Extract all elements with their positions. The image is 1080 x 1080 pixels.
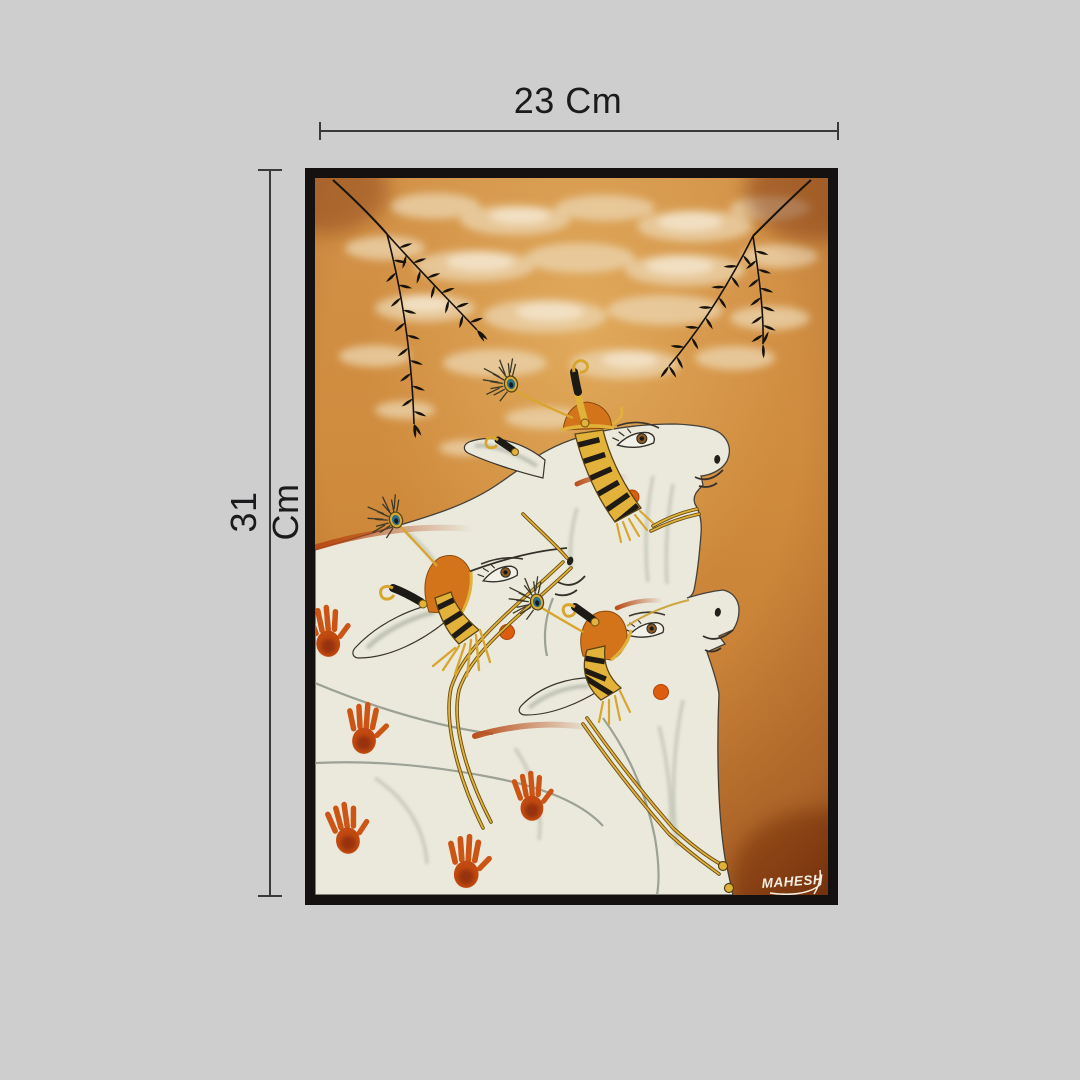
- height-dimension-line: [269, 170, 271, 897]
- width-dimension-tick-right: [837, 122, 839, 140]
- height-dimension-label: 31 Cm: [223, 462, 263, 562]
- width-dimension-label: 23 Cm: [418, 80, 718, 122]
- height-dimension-tick-top: [258, 169, 282, 171]
- product-dimension-image: 23 Cm 31 Cm: [0, 0, 1080, 1080]
- width-dimension-tick-left: [319, 122, 321, 140]
- height-dimension-tick-bottom: [258, 895, 282, 897]
- painting-image: MAHESH: [305, 168, 838, 905]
- width-dimension-line: [320, 130, 838, 132]
